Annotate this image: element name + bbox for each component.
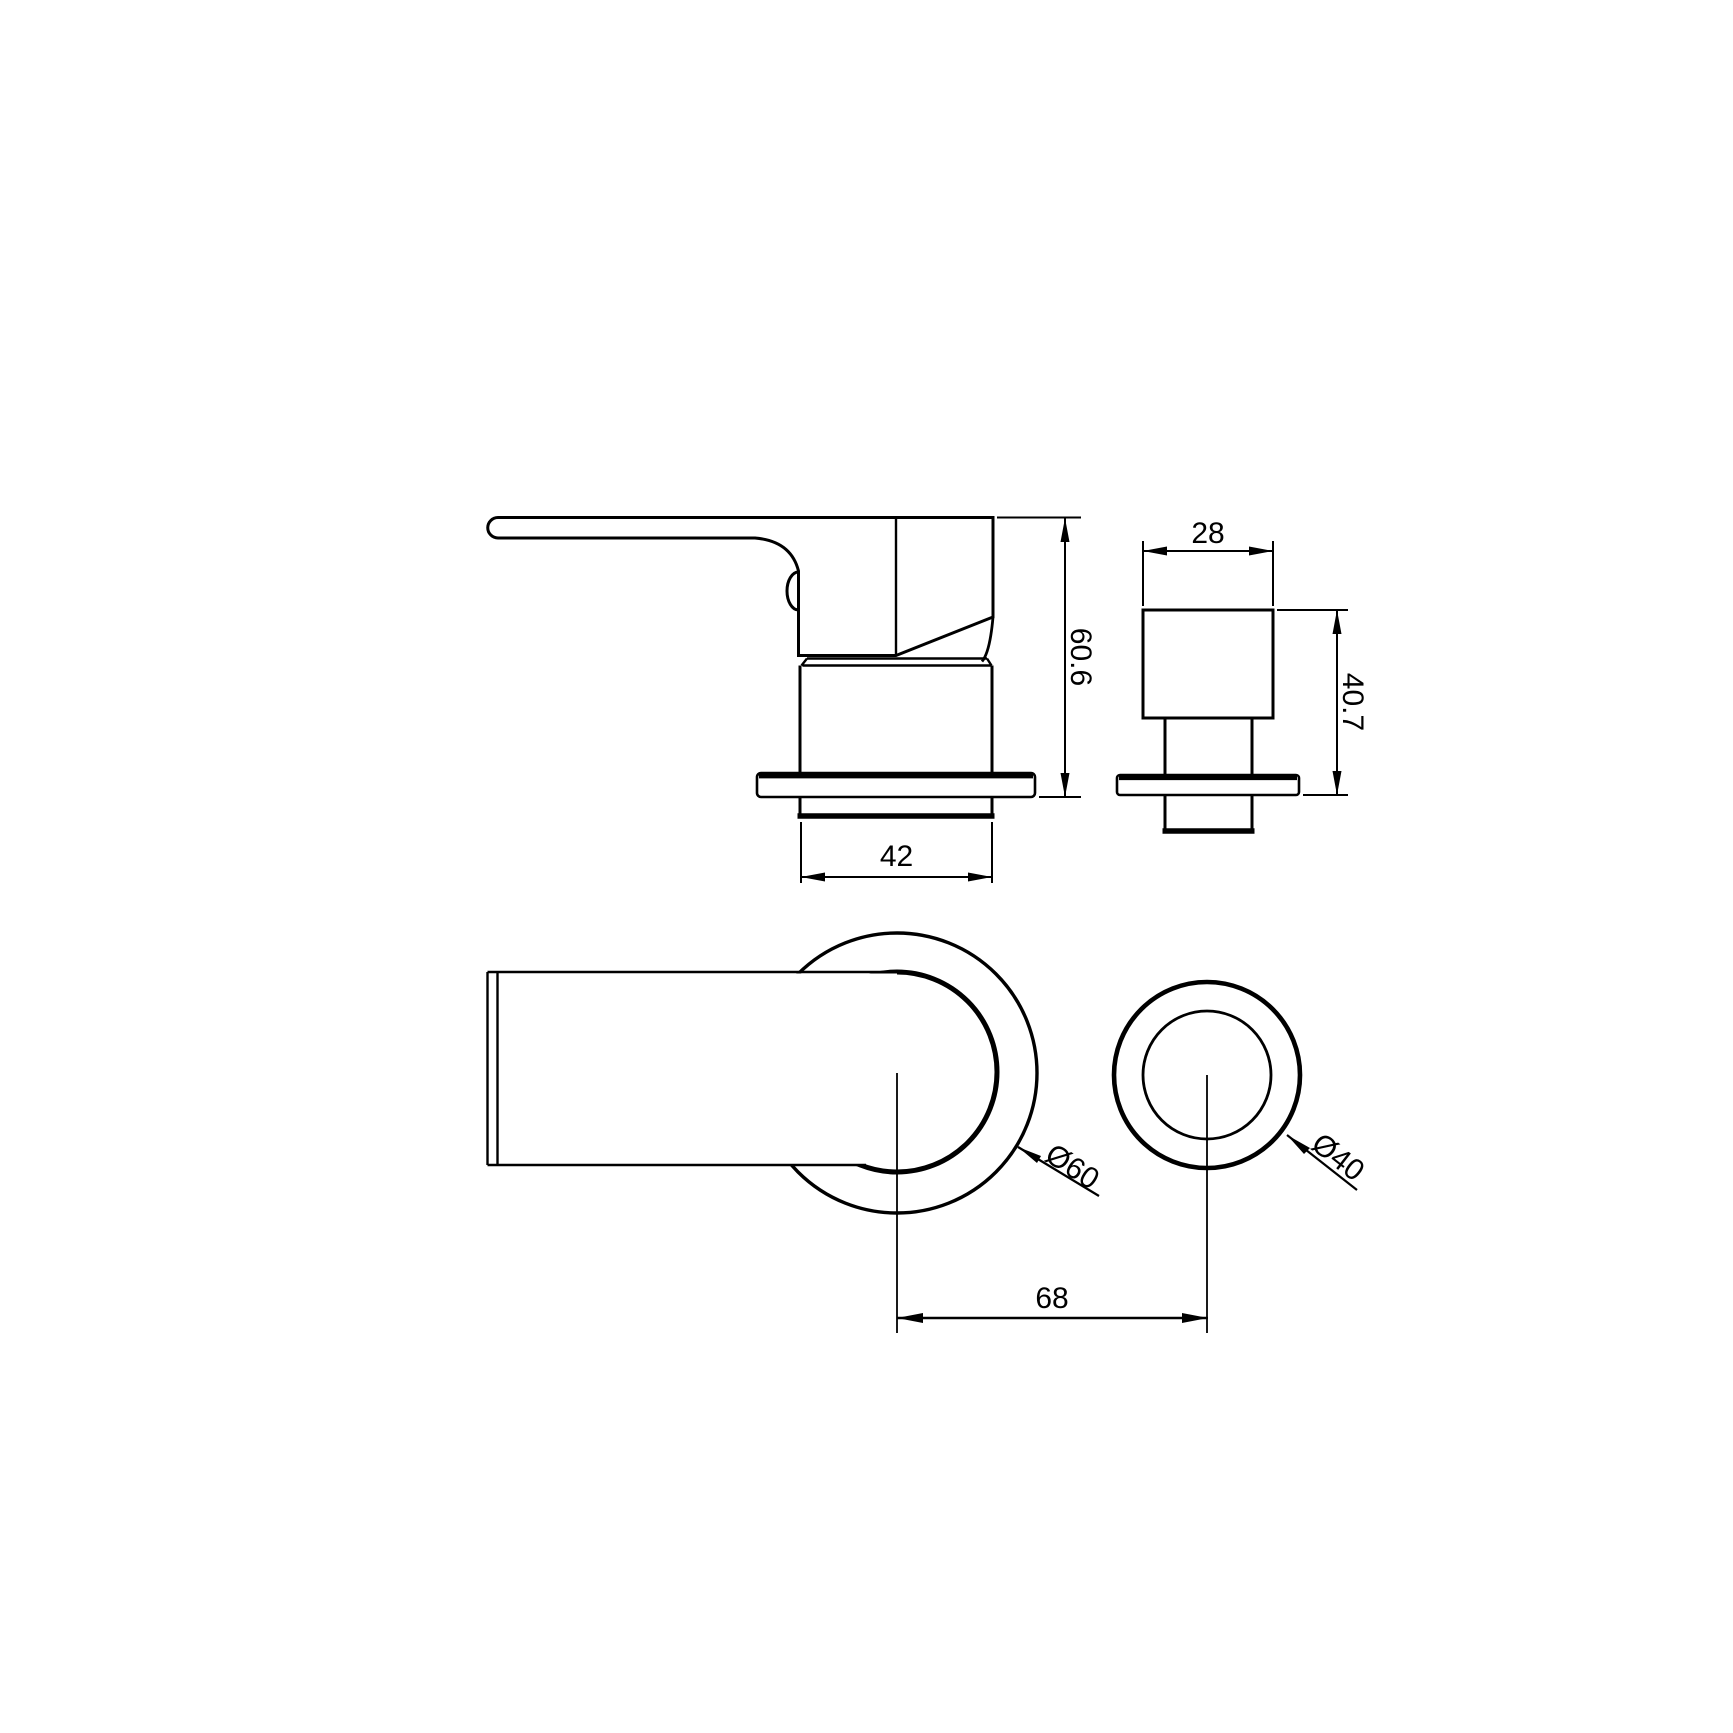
- dimension-valve-height: 40.7: [1277, 610, 1369, 795]
- drawing-canvas: 60.6 42 28 40.7 Ø60: [0, 0, 1733, 1733]
- valve-tail-sides: [1165, 795, 1252, 831]
- dim-40-7-arrow-down: [1333, 771, 1342, 795]
- dim-60-6-arrow-down: [1061, 773, 1070, 797]
- dim-68-arrow-right: [1182, 1313, 1208, 1323]
- lever-handle-outline: [488, 518, 993, 656]
- dim-68-arrow-left: [897, 1313, 923, 1323]
- dim-28-arrow-left: [1143, 547, 1167, 556]
- side-view-mixer: [488, 518, 1035, 817]
- dim-40-7-arrow-up: [1333, 610, 1342, 634]
- dim-60-6-label: 60.6: [1064, 628, 1097, 686]
- dimension-center-distance: 68: [897, 1282, 1208, 1323]
- dim-68-label: 68: [1035, 1282, 1068, 1315]
- cylinder-sides: [800, 666, 992, 774]
- valve-knob: [1143, 610, 1273, 718]
- side-view-valve: [1117, 610, 1299, 831]
- technical-drawing-svg: 60.6 42 28 40.7 Ø60: [0, 0, 1733, 1733]
- leader-60-arrow: [1018, 1147, 1041, 1163]
- dia-60-label: Ø60: [1039, 1138, 1105, 1197]
- leader-mixer-diameter: Ø60: [1018, 1138, 1105, 1197]
- top-view-mixer: [487, 933, 1037, 1333]
- dim-28-arrow-right: [1249, 547, 1273, 556]
- dia-40-label: Ø40: [1305, 1127, 1370, 1188]
- dim-40-7-label: 40.7: [1336, 673, 1369, 731]
- dimension-valve-knob-width: 28: [1143, 517, 1273, 606]
- dim-42-arrow-left: [801, 873, 825, 882]
- dim-60-6-arrow-up: [1061, 518, 1070, 542]
- dim-42-label: 42: [880, 840, 913, 873]
- valve-stem: [1165, 718, 1252, 775]
- handle-top-view-fill: [487, 974, 897, 1165]
- lever-pivot-arc: [787, 572, 799, 610]
- cap-corner-arc: [982, 617, 993, 662]
- dimension-mixer-height: 60.6: [997, 518, 1097, 798]
- top-view-valve: [1114, 982, 1300, 1333]
- dimension-mixer-body-width: 42: [801, 822, 992, 883]
- dim-42-arrow-right: [968, 873, 992, 882]
- collar-seam-lines: [802, 659, 992, 666]
- leader-valve-diameter: Ø40: [1287, 1127, 1370, 1190]
- mixer-skirt-sides: [800, 797, 992, 816]
- dim-28-label: 28: [1191, 517, 1224, 550]
